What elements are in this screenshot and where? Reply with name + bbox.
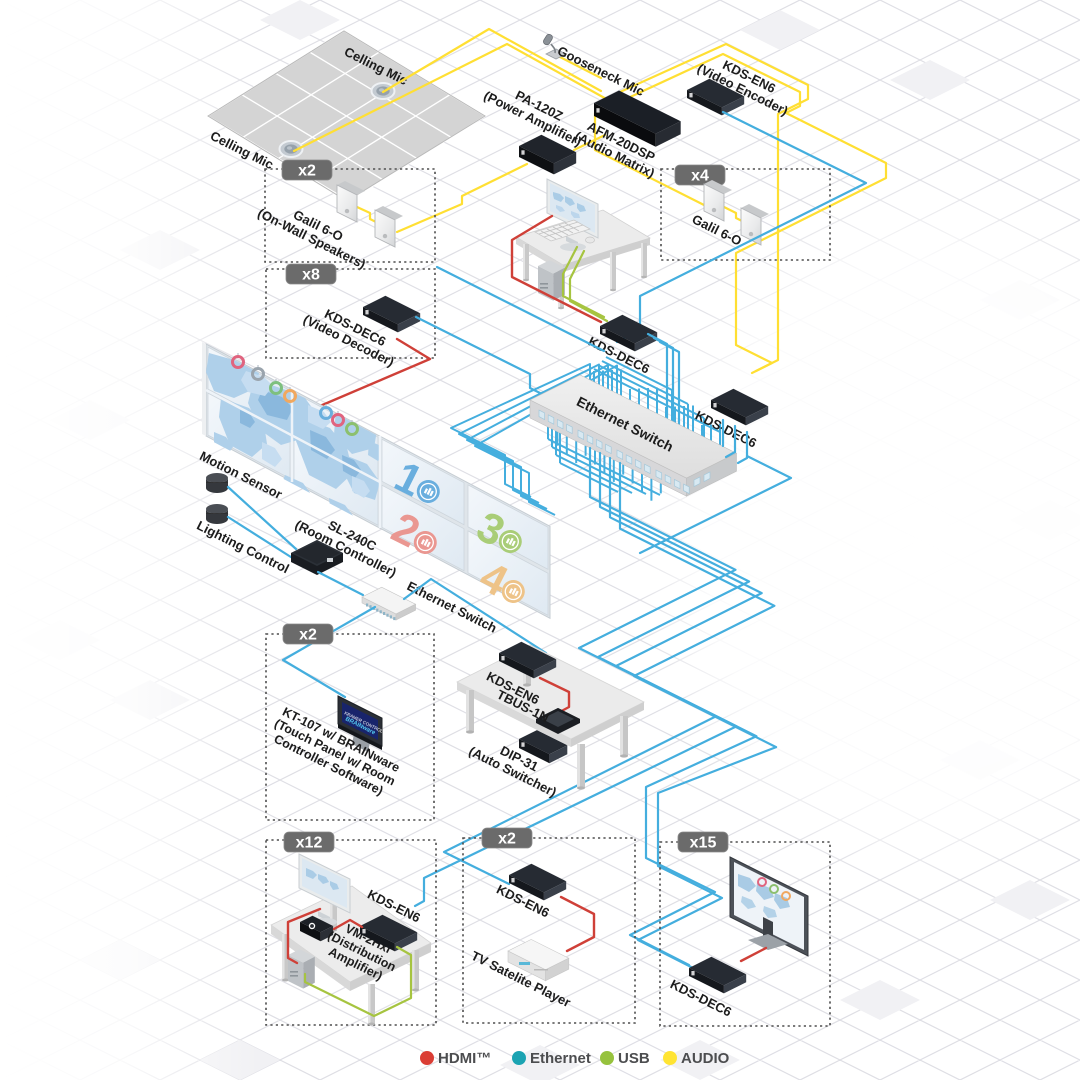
svg-text:x2: x2 bbox=[498, 831, 516, 848]
svg-text:x8: x8 bbox=[302, 267, 320, 284]
svg-text:USB: USB bbox=[618, 1050, 650, 1067]
svg-text:x12: x12 bbox=[296, 835, 323, 852]
svg-text:HDMI™: HDMI™ bbox=[438, 1050, 491, 1067]
svg-text:x2: x2 bbox=[299, 627, 317, 644]
svg-text:x4: x4 bbox=[691, 168, 709, 185]
svg-text:AUDIO: AUDIO bbox=[681, 1050, 730, 1067]
svg-text:x15: x15 bbox=[690, 835, 717, 852]
svg-text:Ethernet: Ethernet bbox=[530, 1050, 591, 1067]
svg-text:x2: x2 bbox=[298, 163, 316, 180]
